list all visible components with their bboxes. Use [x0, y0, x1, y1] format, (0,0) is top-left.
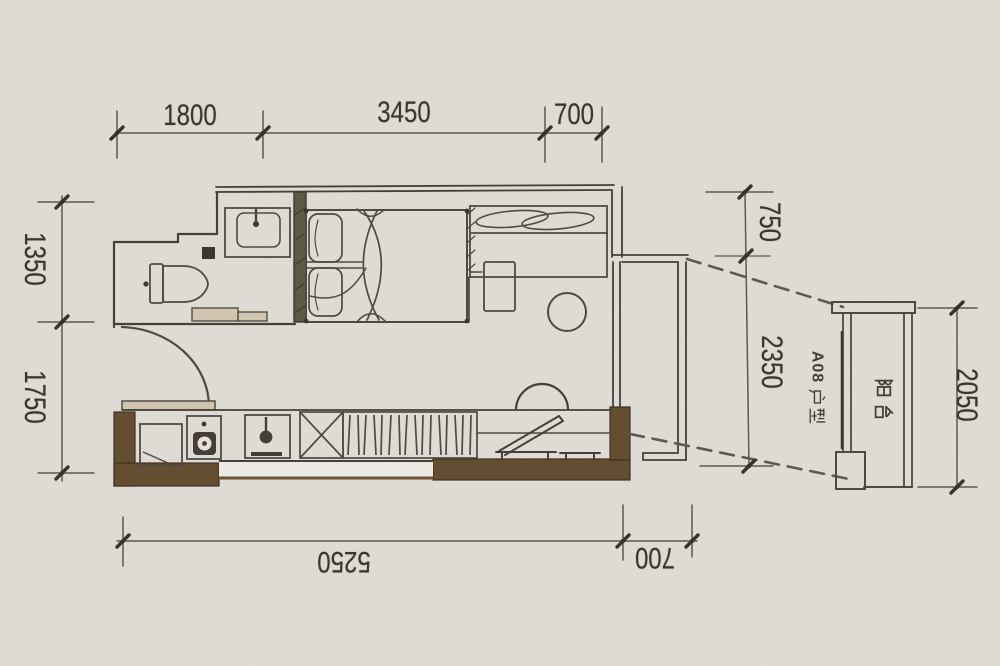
floor-plan-drawing: A08 — [0, 0, 1000, 666]
floor-plan-page: A08 — [0, 0, 1000, 666]
dim-top-3450: 3450 — [377, 96, 430, 130]
dim-top-1800: 1800 — [163, 99, 216, 133]
dim-bottom-700: 700 — [635, 540, 675, 574]
dim-top-700: 700 — [554, 98, 594, 132]
dim-right-2350: 2350 — [754, 335, 788, 388]
dim-balcony-2050: 2050 — [949, 368, 983, 421]
paper-texture-overlay — [0, 0, 1000, 666]
dim-bottom-5250: 5250 — [317, 544, 370, 578]
dim-left-1350: 1350 — [17, 232, 51, 285]
dim-left-1750: 1750 — [17, 370, 51, 423]
dim-right-750: 750 — [752, 202, 786, 242]
